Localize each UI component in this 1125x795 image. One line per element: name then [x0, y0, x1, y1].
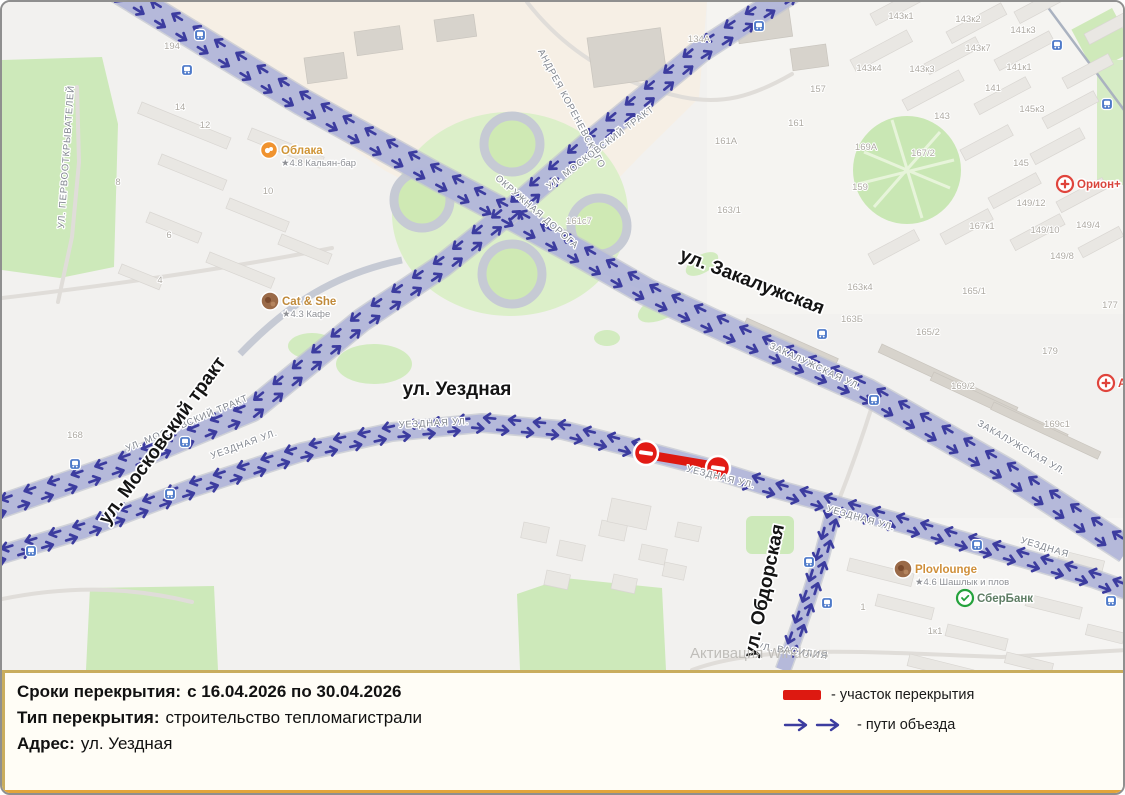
house-number: 12: [200, 120, 211, 131]
house-number: 177: [1102, 300, 1118, 311]
house-number: 179: [1042, 346, 1058, 357]
map-canvas[interactable]: Облака★4.8 Кальян-барCat & She★4.3 КафеP…: [2, 2, 1125, 670]
closure-bar-icon: [783, 690, 821, 700]
closure-dates-row: Сроки перекрытия:с 16.04.2026 по 30.04.2…: [17, 679, 422, 705]
detour-arrows-icon: [783, 717, 847, 733]
poi-title: Plovlounge: [915, 564, 977, 576]
house-number: 161А: [715, 136, 738, 147]
house-number: 8: [115, 177, 120, 188]
bus-stop-icon[interactable]: [165, 489, 176, 500]
closure-address-value: ул. Уездная: [81, 734, 173, 753]
house-number: 141: [985, 83, 1001, 94]
poi-title: А: [1118, 378, 1125, 390]
street-label-major: ул. Уездная: [403, 379, 512, 400]
house-number: 143к1: [888, 11, 913, 22]
house-number: 157: [810, 84, 826, 95]
poi[interactable]: СберБанк: [957, 590, 1033, 606]
legend-closure-row: - участок перекрытия: [783, 685, 974, 705]
house-number: 167к1: [969, 221, 994, 232]
house-number: 161с7: [566, 216, 592, 227]
house-number: 149/8: [1050, 251, 1074, 262]
watermark-text: Активация Windows: [690, 645, 828, 662]
legend-detour-label: - пути объезда: [857, 717, 955, 733]
house-number: 14: [175, 102, 186, 113]
house-number: 161: [788, 118, 804, 129]
poi-subtitle: ★4.3 Кафе: [282, 309, 330, 320]
house-number: 143к7: [965, 43, 990, 54]
house-number: 163/1: [717, 205, 741, 216]
house-number: 145к3: [1019, 104, 1044, 115]
closure-type-value: строительство тепломагистрали: [166, 708, 423, 727]
house-number: 149/4: [1076, 220, 1100, 231]
house-number: 169с1: [1044, 419, 1070, 430]
poi-title: Орион+: [1077, 179, 1121, 191]
poi-title: Облака: [281, 145, 323, 157]
building: [304, 52, 347, 83]
poi-title: СберБанк: [977, 593, 1033, 605]
closure-address-row: Адрес:ул. Уездная: [17, 731, 422, 757]
bus-stop-icon[interactable]: [972, 540, 983, 551]
house-number: 194: [164, 41, 180, 52]
bus-stop-icon[interactable]: [869, 395, 880, 406]
house-number: 169/2: [951, 381, 975, 392]
poi-title: Cat & She: [282, 296, 336, 308]
house-number: 168: [67, 430, 83, 441]
bus-stop-icon[interactable]: [1052, 40, 1063, 51]
house-number: 134А: [688, 34, 711, 45]
closure-address-label: Адрес:: [17, 734, 75, 753]
legend-detour-row: - пути объезда: [783, 715, 974, 735]
house-number: 6: [166, 230, 171, 241]
house-number: 165/1: [962, 286, 986, 297]
house-number: 143к2: [955, 14, 980, 25]
poi-subtitle: ★4.6 Шашлык и плов: [915, 577, 1009, 588]
house-number: 159: [852, 182, 868, 193]
closure-info-text: Сроки перекрытия:с 16.04.2026 по 30.04.2…: [17, 679, 422, 757]
house-number: 141к1: [1006, 62, 1031, 73]
bus-stop-icon[interactable]: [1102, 99, 1113, 110]
map-legend: - участок перекрытия - пути объезда: [783, 685, 974, 745]
bus-stop-icon[interactable]: [804, 557, 815, 568]
bus-stop-icon[interactable]: [817, 329, 828, 340]
house-number: 145: [1013, 158, 1029, 169]
road-closure-map-screenshot: Облака★4.8 Кальян-барCat & She★4.3 КафеP…: [0, 0, 1125, 795]
house-number: 1к1: [928, 626, 943, 637]
house-number: 163Б: [841, 314, 863, 325]
poi[interactable]: Орион+: [1057, 176, 1121, 192]
bus-stop-icon[interactable]: [1106, 596, 1117, 607]
house-number: 167/2: [911, 148, 935, 159]
bus-stop-icon[interactable]: [26, 546, 37, 557]
closure-type-row: Тип перекрытия:строительство тепломагист…: [17, 705, 422, 731]
house-number: 163к4: [847, 282, 872, 293]
legend-closure-label: - участок перекрытия: [831, 687, 974, 703]
bus-stop-icon[interactable]: [70, 459, 81, 470]
bus-stop-icon[interactable]: [754, 21, 765, 32]
poi-subtitle: ★4.8 Кальян-бар: [281, 158, 356, 169]
building: [790, 44, 829, 71]
poi[interactable]: А: [1098, 375, 1125, 391]
info-panel: Сроки перекрытия:с 16.04.2026 по 30.04.2…: [2, 670, 1125, 795]
bus-stop-icon[interactable]: [180, 437, 191, 448]
closure-dates-value: с 16.04.2026 по 30.04.2026: [187, 682, 401, 701]
windows-activation-watermark: Активация Windows: [690, 645, 828, 662]
house-number: 143к4: [856, 63, 881, 74]
house-number: 10: [263, 186, 274, 197]
bus-stop-icon[interactable]: [182, 65, 193, 76]
house-number: 149/10: [1030, 225, 1059, 236]
house-number: 169А: [855, 142, 878, 153]
closure-type-label: Тип перекрытия:: [17, 708, 160, 727]
house-number: 4: [157, 275, 162, 286]
house-number: 149/12: [1016, 198, 1045, 209]
house-number: 143к3: [909, 64, 934, 75]
bus-stop-icon[interactable]: [822, 598, 833, 609]
house-number: 165/2: [916, 327, 940, 338]
closure-dates-label: Сроки перекрытия:: [17, 682, 181, 701]
bus-stop-icon[interactable]: [195, 30, 206, 41]
house-number: 1: [860, 602, 865, 613]
house-number: 143: [934, 111, 950, 122]
house-number: 141к3: [1010, 25, 1035, 36]
